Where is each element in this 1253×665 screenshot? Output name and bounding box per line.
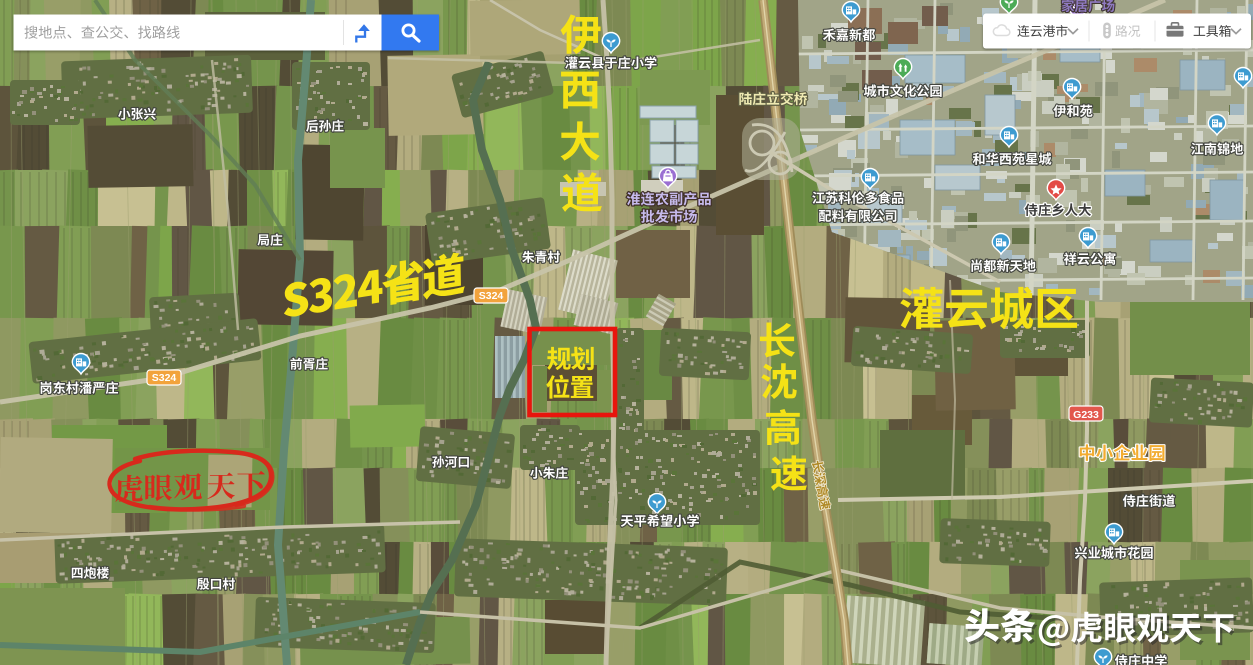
svg-text:S324: S324 [152, 372, 177, 384]
svg-text:G233: G233 [1073, 409, 1099, 421]
svg-text:S324: S324 [479, 290, 504, 302]
